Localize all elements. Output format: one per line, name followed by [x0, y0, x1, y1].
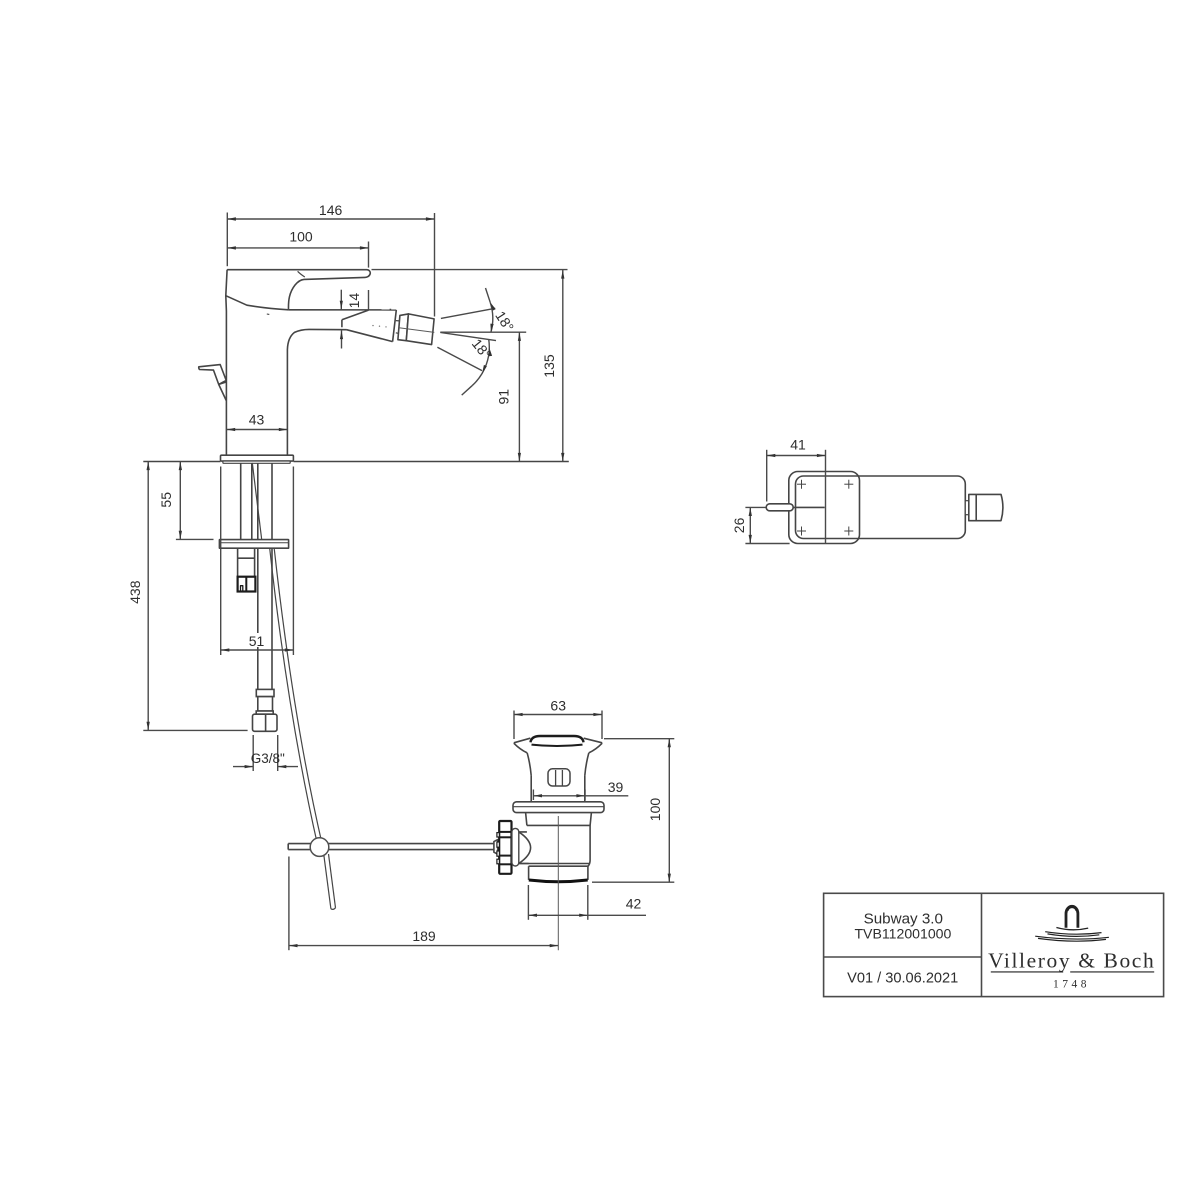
svg-text:1748: 1748: [1053, 979, 1090, 991]
svg-text:Villeroy & Boch: Villeroy & Boch: [988, 948, 1155, 972]
svg-text:42: 42: [626, 896, 642, 912]
svg-text:63: 63: [550, 697, 566, 713]
svg-text:41: 41: [790, 437, 806, 453]
svg-text:135: 135: [541, 354, 557, 378]
svg-text:438: 438: [127, 580, 143, 604]
svg-text:26: 26: [731, 517, 747, 533]
svg-text:39: 39: [608, 779, 624, 795]
svg-text:43: 43: [249, 412, 265, 428]
svg-text:100: 100: [289, 229, 313, 245]
svg-text:189: 189: [412, 928, 436, 944]
svg-text:V01 / 30.06.2021: V01 / 30.06.2021: [847, 971, 958, 987]
svg-text:100: 100: [647, 798, 663, 822]
svg-text:51: 51: [249, 633, 265, 649]
svg-text:14: 14: [346, 293, 362, 309]
svg-text:G3/8": G3/8": [251, 751, 285, 766]
svg-text:146: 146: [319, 202, 343, 218]
svg-text:91: 91: [496, 389, 512, 405]
svg-text:TVB112001000: TVB112001000: [854, 926, 951, 942]
svg-text:55: 55: [158, 492, 174, 508]
